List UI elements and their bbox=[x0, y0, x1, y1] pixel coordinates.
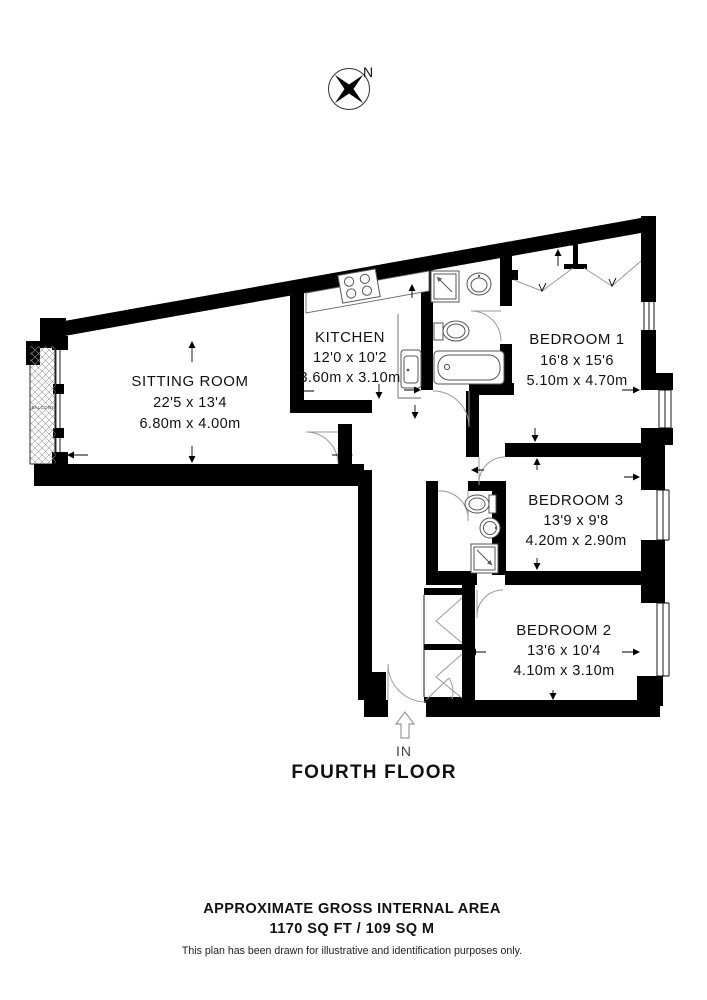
compass-star-icon bbox=[335, 75, 363, 103]
bedroom2-door bbox=[477, 590, 503, 618]
entrance-arrow-icon bbox=[396, 712, 414, 738]
footer: APPROXIMATE GROSS INTERNAL AREA 1170 SQ … bbox=[182, 901, 522, 957]
basin-icon bbox=[467, 273, 491, 295]
bathroom-fixtures bbox=[431, 271, 504, 384]
ensuite-toilet-icon bbox=[465, 495, 496, 513]
floorplan-canvas: N BALCONY bbox=[0, 0, 707, 1000]
compass: N bbox=[329, 64, 374, 110]
area-value: 1170 SQ FT / 109 SQ M bbox=[270, 921, 435, 937]
ensuite-door bbox=[438, 491, 468, 521]
balcony: BALCONY bbox=[30, 346, 56, 464]
kitchen-metric: 3.60m x 3.10m bbox=[299, 370, 400, 386]
sitting-room-imperial: 22'5 x 13'4 bbox=[153, 395, 227, 411]
bathtub-icon bbox=[434, 351, 504, 384]
room-label-sitting: SITTING ROOM 22'5 x 13'4 6.80m x 4.00m bbox=[131, 373, 248, 432]
hob-icon bbox=[338, 269, 380, 303]
entrance-label: IN bbox=[396, 743, 412, 759]
bedroom3-name: BEDROOM 3 bbox=[528, 492, 623, 509]
kitchen-sink-icon bbox=[401, 350, 421, 388]
bedroom1-name: BEDROOM 1 bbox=[529, 331, 624, 348]
balcony-label: BALCONY bbox=[31, 405, 54, 410]
ensuite-basin-icon bbox=[480, 518, 500, 538]
area-title: APPROXIMATE GROSS INTERNAL AREA bbox=[203, 901, 501, 917]
bedroom3-imperial: 13'9 x 9'8 bbox=[543, 513, 608, 529]
floorplan-page: N BALCONY bbox=[0, 0, 707, 1000]
shower-icon bbox=[431, 271, 459, 302]
disclaimer-text: This plan has been drawn for illustrativ… bbox=[182, 945, 522, 957]
bathroom-hall-door bbox=[433, 391, 469, 427]
entrance-door bbox=[388, 664, 426, 702]
toilet-icon bbox=[434, 321, 469, 341]
compass-north-label: N bbox=[363, 64, 373, 80]
ensuite-fixtures bbox=[465, 495, 500, 573]
room-label-bedroom3: BEDROOM 3 13'9 x 9'8 4.20m x 2.90m bbox=[525, 492, 626, 549]
floor-title: FOURTH FLOOR bbox=[291, 762, 456, 783]
kitchen-door bbox=[306, 432, 338, 464]
bedroom2-metric: 4.10m x 3.10m bbox=[513, 663, 614, 679]
bedroom1-imperial: 16'8 x 15'6 bbox=[540, 353, 614, 369]
ensuite-shower-icon bbox=[471, 544, 498, 573]
bedroom3-door bbox=[479, 457, 505, 485]
kitchen-imperial: 12'0 x 10'2 bbox=[313, 350, 387, 366]
room-label-kitchen: KITCHEN 12'0 x 10'2 3.60m x 3.10m bbox=[299, 329, 400, 386]
bedroom3-metric: 4.20m x 2.90m bbox=[525, 533, 626, 549]
sitting-room-metric: 6.80m x 4.00m bbox=[139, 416, 240, 432]
entrance-second-leaf bbox=[426, 678, 453, 700]
bedroom2-imperial: 13'6 x 10'4 bbox=[527, 643, 601, 659]
bedroom2-name: BEDROOM 2 bbox=[516, 622, 611, 639]
room-label-bedroom2: BEDROOM 2 13'6 x 10'4 4.10m x 3.10m bbox=[513, 622, 614, 679]
bedroom1-metric: 5.10m x 4.70m bbox=[526, 373, 627, 389]
kitchen-name: KITCHEN bbox=[315, 329, 385, 346]
sitting-room-name: SITTING ROOM bbox=[131, 373, 248, 390]
room-label-bedroom1: BEDROOM 1 16'8 x 15'6 5.10m x 4.70m bbox=[526, 331, 627, 389]
entrance: IN bbox=[396, 712, 414, 759]
bathroom-inner-door bbox=[471, 311, 501, 341]
